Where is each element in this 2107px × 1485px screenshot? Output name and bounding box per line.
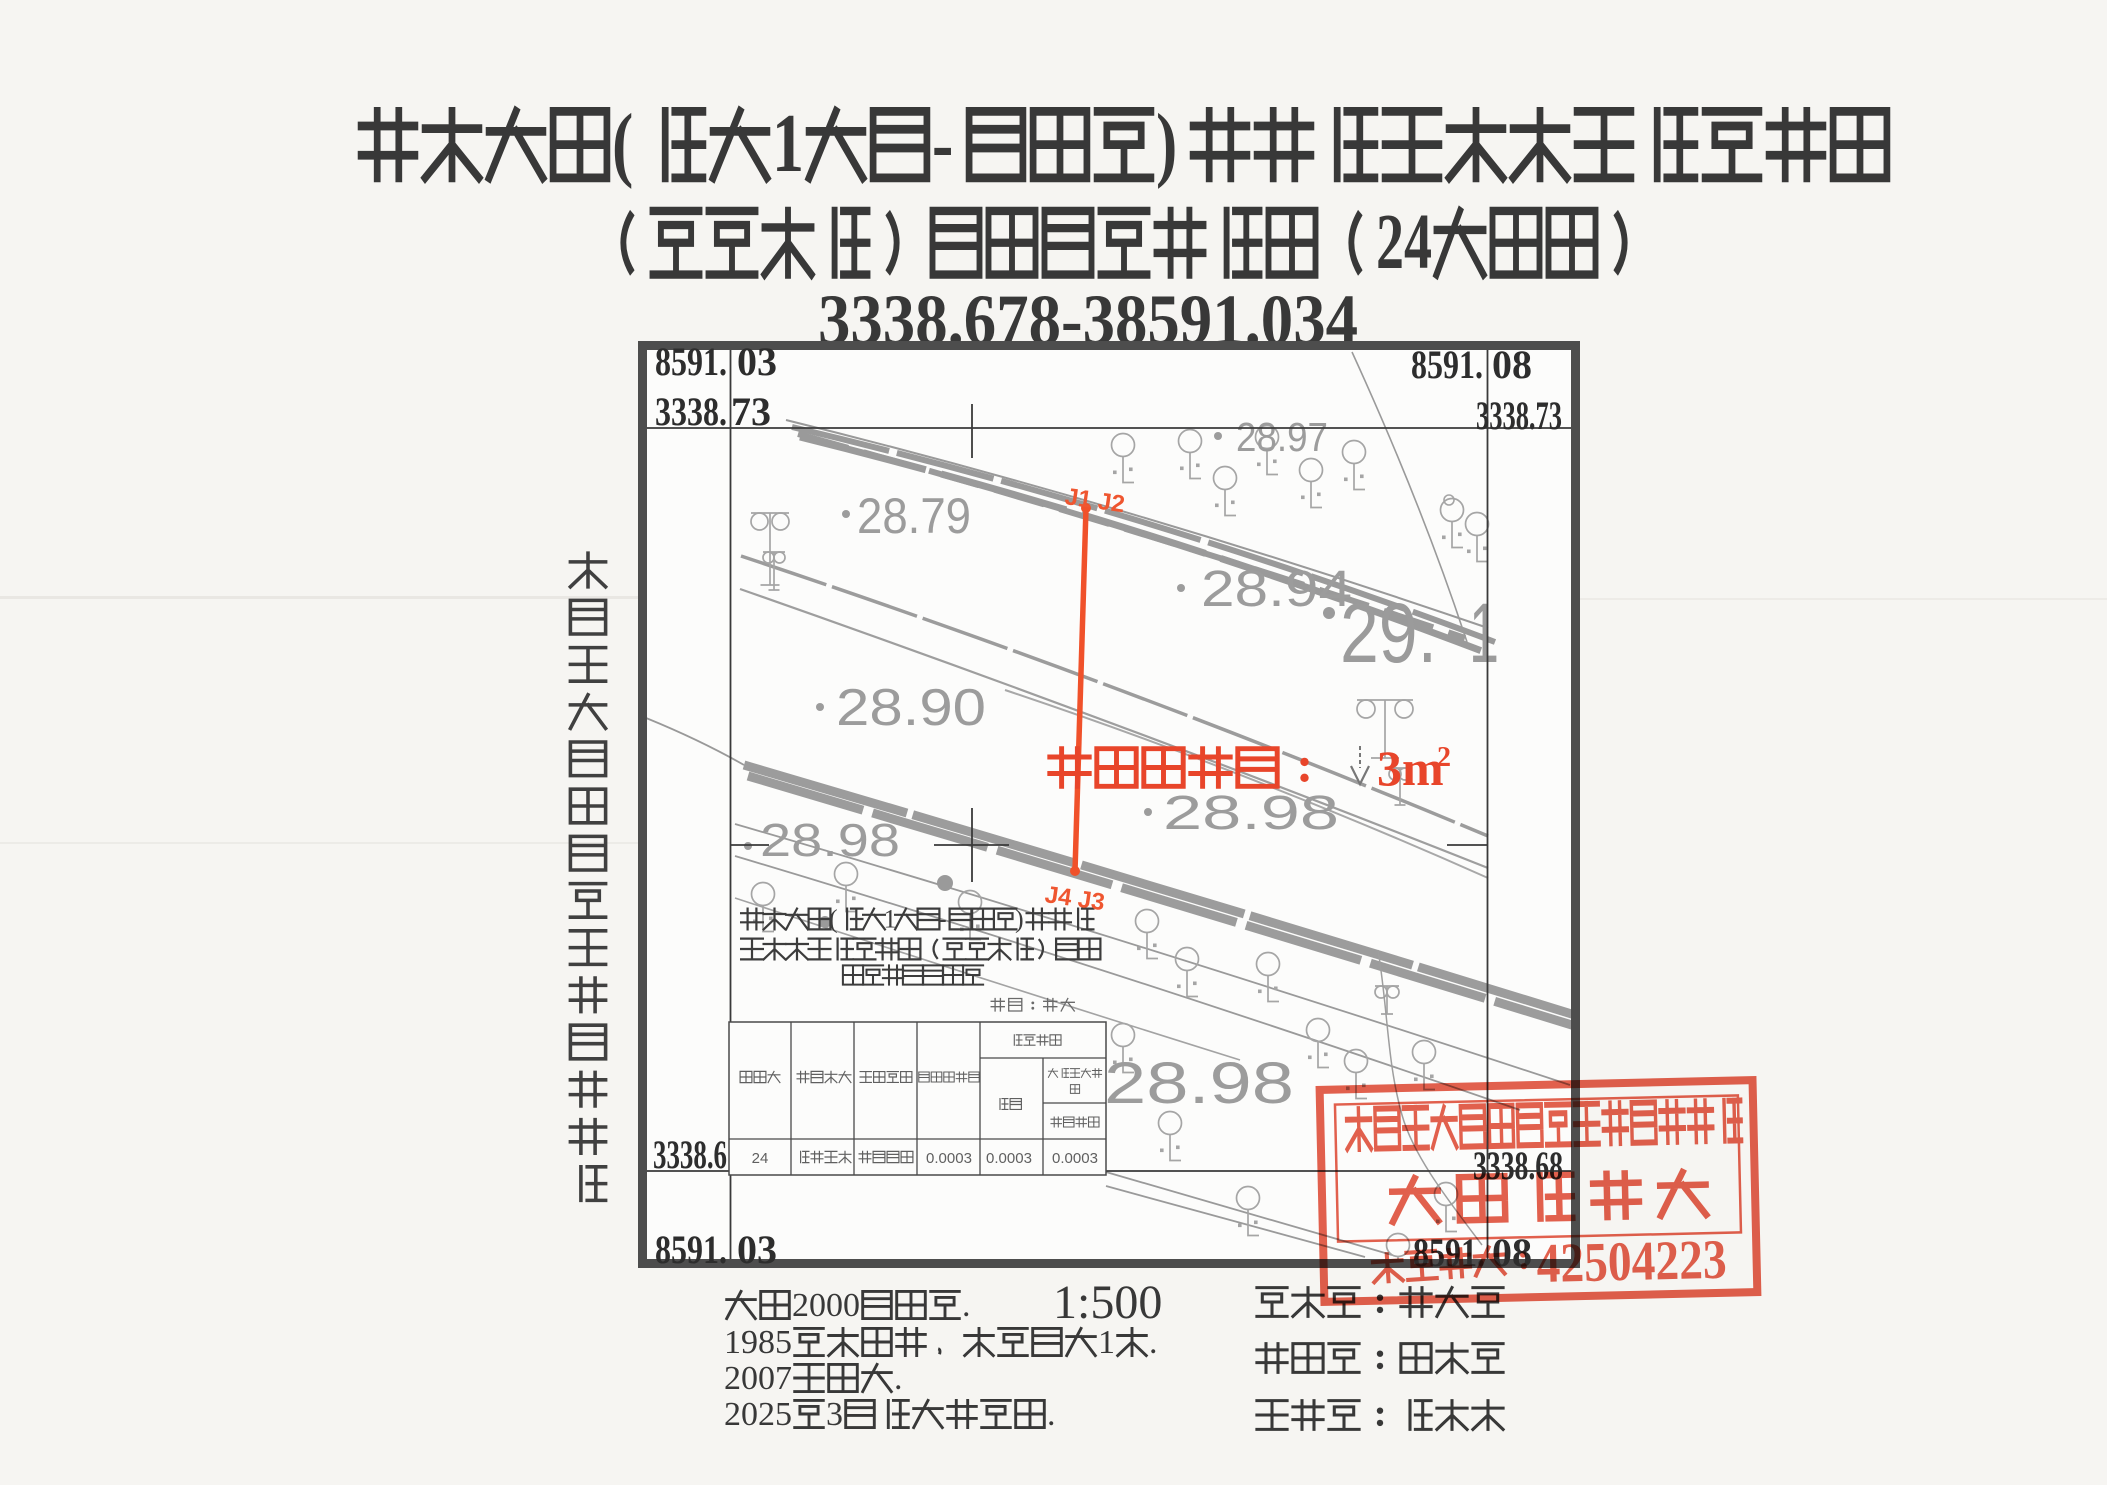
svg-text:): ) (1015, 904, 1024, 933)
svg-text:29.: 29. (1340, 586, 1437, 680)
svg-text:.: . (894, 1360, 903, 1397)
svg-text:3338.6: 3338.6 (653, 1132, 727, 1177)
svg-text:(: ( (612, 98, 633, 190)
svg-text:1:500: 1:500 (1053, 1276, 1162, 1329)
svg-text:3338.68: 3338.68 (1473, 1143, 1563, 1188)
svg-text:1985: 1985 (724, 1324, 792, 1361)
svg-text:-: - (932, 98, 953, 190)
svg-text:28.98: 28.98 (1163, 787, 1339, 840)
svg-text:28.98: 28.98 (1104, 1051, 1294, 1116)
svg-text:03: 03 (737, 339, 777, 384)
svg-text:8591.: 8591. (655, 339, 727, 384)
svg-text:0.0003: 0.0003 (1052, 1150, 1098, 1167)
svg-text:2025: 2025 (724, 1396, 792, 1433)
svg-text:24: 24 (1376, 198, 1432, 286)
svg-text:.: . (1149, 1324, 1158, 1361)
svg-text:28.90: 28.90 (836, 679, 986, 737)
svg-text:2: 2 (1437, 742, 1451, 773)
svg-text:2000: 2000 (792, 1287, 860, 1324)
svg-text:73: 73 (731, 389, 771, 434)
svg-text:8591.: 8591. (1411, 342, 1483, 387)
svg-text:28.97: 28.97 (1236, 414, 1328, 460)
svg-text:2007: 2007 (724, 1360, 792, 1397)
svg-text:0.0003: 0.0003 (926, 1150, 972, 1167)
svg-text:3m: 3m (1377, 740, 1444, 796)
svg-text:08: 08 (1492, 342, 1532, 387)
svg-text:24: 24 (752, 1150, 769, 1167)
svg-text:(: ( (829, 904, 838, 933)
svg-text:42504223: 42504223 (1536, 1229, 1727, 1295)
svg-text:0.0003: 0.0003 (986, 1150, 1032, 1167)
svg-text:1: 1 (1098, 1324, 1115, 1361)
svg-text:3338.: 3338. (655, 389, 727, 434)
svg-text:.: . (1047, 1396, 1056, 1433)
svg-text:1: 1 (1469, 586, 1499, 680)
svg-text:.: . (962, 1287, 971, 1324)
svg-text:3: 3 (826, 1396, 843, 1433)
svg-text:8591.: 8591. (655, 1227, 727, 1272)
svg-text:): ) (1156, 98, 1177, 190)
svg-text:-: - (938, 904, 947, 933)
svg-text:03: 03 (737, 1227, 777, 1272)
svg-text:28.98: 28.98 (760, 814, 900, 866)
svg-text:1: 1 (772, 98, 804, 190)
svg-text:28.79: 28.79 (857, 488, 971, 544)
svg-text:3338.73: 3338.73 (1476, 393, 1562, 438)
